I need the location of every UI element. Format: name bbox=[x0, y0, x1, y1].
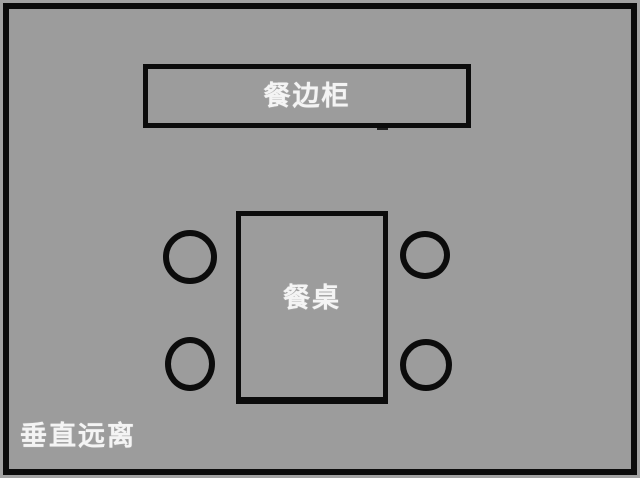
sideboard-shape: 餐边柜 bbox=[143, 64, 471, 128]
sideboard-label: 餐边柜 bbox=[264, 83, 351, 110]
chair-circle bbox=[400, 231, 450, 279]
chair-circle bbox=[400, 339, 452, 391]
dining-table-shape: 餐桌 bbox=[236, 211, 388, 404]
diagram-canvas: 餐边柜 餐桌 垂直远离 bbox=[0, 0, 640, 478]
dining-table-label: 餐桌 bbox=[283, 285, 341, 328]
smudge-mark bbox=[377, 127, 388, 130]
caption-text: 垂直远离 bbox=[20, 421, 136, 452]
chair-circle bbox=[165, 337, 215, 391]
chair-circle bbox=[163, 230, 217, 284]
